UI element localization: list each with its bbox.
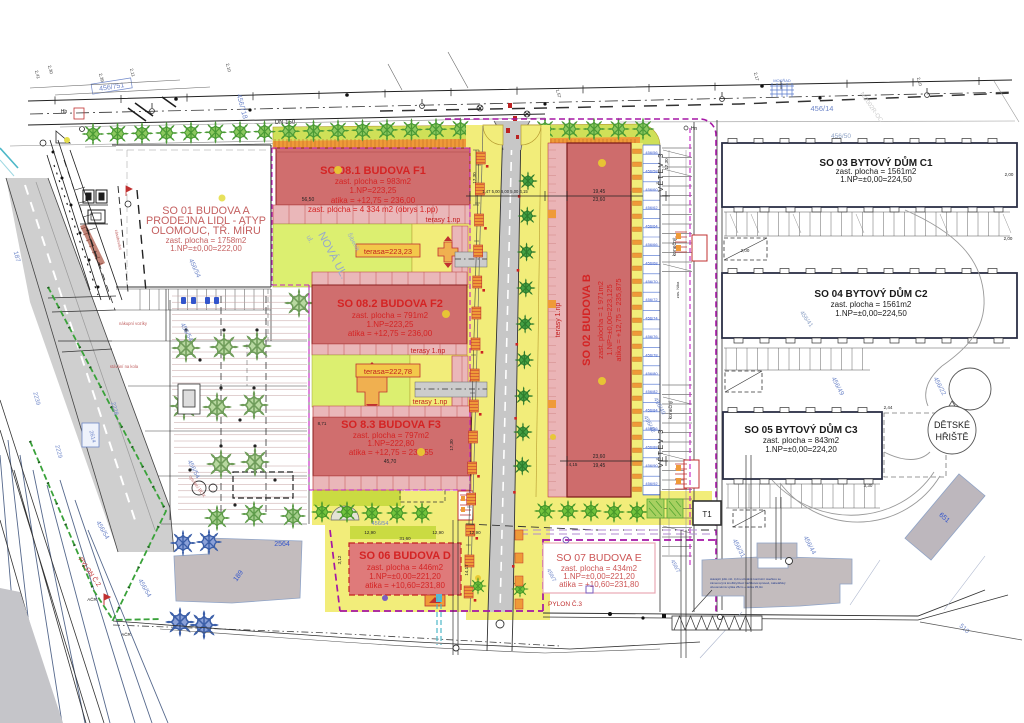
svg-text:456/14: 456/14 <box>811 104 834 113</box>
svg-text:AČR: AČR <box>121 631 131 637</box>
svg-text:23,60: 23,60 <box>593 454 606 460</box>
svg-text:SO 04 BYTOVÝ DŮM C2: SO 04 BYTOVÝ DŮM C2 <box>814 286 928 300</box>
svg-text:12,90: 12,90 <box>469 530 481 535</box>
svg-text:atika = +12,75 = 236,00: atika = +12,75 = 236,00 <box>348 329 433 338</box>
svg-text:nákupní vozíky: nákupní vozíky <box>119 321 148 326</box>
svg-text:456/72: 456/72 <box>645 297 658 302</box>
svg-text:56,50: 56,50 <box>302 197 315 203</box>
svg-text:1.NP=±0,00=224,50: 1.NP=±0,00=224,50 <box>835 309 907 318</box>
svg-text:AČR: AČR <box>87 596 97 602</box>
svg-text:SO 06 BUDOVA D: SO 06 BUDOVA D <box>359 550 451 562</box>
svg-text:4,15: 4,15 <box>569 462 578 467</box>
svg-text:456/74: 456/74 <box>645 316 658 321</box>
svg-text:zast. plocha = 843m2: zast. plocha = 843m2 <box>763 436 840 445</box>
svg-text:stávání na kola: stávání na kola <box>110 364 139 369</box>
svg-text:12,90: 12,90 <box>364 530 376 535</box>
svg-text:SO 05 BYTOVÝ DŮM C3: SO 05 BYTOVÝ DŮM C3 <box>744 422 858 436</box>
svg-text:456/60: 456/60 <box>645 187 658 192</box>
svg-text:atika = +10,60=231,80: atika = +10,60=231,80 <box>559 580 639 589</box>
svg-text:MOKŘAD: MOKŘAD <box>773 78 791 83</box>
svg-text:1.NP=±0,00=221,20: 1.NP=±0,00=221,20 <box>369 572 441 581</box>
svg-text:terasy 1.np: terasy 1.np <box>555 303 562 338</box>
svg-text:31,60: 31,60 <box>399 536 411 541</box>
svg-text:2,00: 2,00 <box>1005 172 1014 177</box>
svg-text:atika = +12,75 = 236,00: atika = +12,75 = 236,00 <box>331 196 416 205</box>
svg-text:zast. plocha = 4 334 m2 (obrys: zast. plocha = 4 334 m2 (obrys 1.pp) <box>308 205 438 214</box>
svg-text:456/70: 456/70 <box>645 279 658 284</box>
svg-text:terasy 1.np: terasy 1.np <box>411 348 446 355</box>
svg-text:HŘIŠTĚ: HŘIŠTĚ <box>935 432 968 442</box>
svg-text:terasy 1.np: terasy 1.np <box>413 399 448 406</box>
svg-text:zast. plocha = 446m2: zast. plocha = 446m2 <box>367 563 444 572</box>
svg-text:17,30: 17,30 <box>472 172 477 184</box>
svg-text:obousměrná výška 25cm + délka: obousměrná výška 25cm + délka 35,0m <box>710 585 764 589</box>
svg-text:zast. plocha = 1561m2: zast. plocha = 1561m2 <box>831 300 912 309</box>
svg-text:1,47 5,00 6,00 5,00 4,15: 1,47 5,00 6,00 5,00 4,15 <box>482 189 528 194</box>
svg-text:456/56: 456/56 <box>645 150 658 155</box>
svg-text:23,60: 23,60 <box>593 197 606 203</box>
svg-text:1.NP=±0,00=224,50: 1.NP=±0,00=224,50 <box>840 175 912 184</box>
svg-text:terasa=223,23: terasa=223,23 <box>364 247 412 256</box>
svg-text:1.NP=223,25: 1.NP=223,25 <box>350 186 397 195</box>
svg-text:zast. plocha = 983m2: zast. plocha = 983m2 <box>335 177 412 186</box>
svg-text:456/54: 456/54 <box>372 521 389 527</box>
svg-text:456/58: 456/58 <box>645 168 658 173</box>
svg-text:17,30: 17,30 <box>449 439 454 451</box>
svg-text:VĚTEV 3: VĚTEV 3 <box>656 428 665 467</box>
svg-text:2,44: 2,44 <box>884 405 893 410</box>
svg-text:14,17: 14,17 <box>464 564 469 576</box>
svg-text:1.NP=±0,00=223,125: 1.NP=±0,00=223,125 <box>605 284 614 355</box>
svg-text:SO 8.3 BUDOVA F3: SO 8.3 BUDOVA F3 <box>341 419 441 431</box>
svg-text:DĚTSKÉ: DĚTSKÉ <box>934 420 970 430</box>
svg-text:456/80: 456/80 <box>645 371 658 376</box>
svg-text:456/66: 456/66 <box>645 242 658 247</box>
svg-text:SO 08.2 BUDOVA F2: SO 08.2 BUDOVA F2 <box>337 298 443 310</box>
svg-text:456/84: 456/84 <box>645 408 658 413</box>
svg-text:456/64: 456/64 <box>645 224 658 229</box>
svg-text:terasy 1.np: terasy 1.np <box>426 217 461 224</box>
svg-text:3,12: 3,12 <box>337 555 342 564</box>
svg-text:456/82: 456/82 <box>645 389 658 394</box>
svg-text:2,00: 2,00 <box>1004 236 1013 241</box>
svg-text:2,00: 2,00 <box>741 248 750 253</box>
svg-text:456/76: 456/76 <box>645 334 658 339</box>
svg-text:17,30: 17,30 <box>664 158 669 170</box>
svg-text:zas. Nika: zas. Nika <box>675 281 680 298</box>
svg-text:zast. plocha = 1 971m2: zast. plocha = 1 971m2 <box>596 281 605 359</box>
svg-text:456/90: 456/90 <box>645 463 658 468</box>
svg-text:1.NP=±0,00=222,00: 1.NP=±0,00=222,00 <box>170 244 242 253</box>
svg-text:SO 02 BUDOVA B: SO 02 BUDOVA B <box>581 274 593 366</box>
svg-text:T1: T1 <box>702 510 712 519</box>
svg-text:456/78: 456/78 <box>645 352 658 357</box>
svg-text:456/68: 456/68 <box>645 260 658 265</box>
svg-text:Hn: Hn <box>691 126 698 132</box>
svg-text:PYLON Č.3: PYLON Č.3 <box>548 599 582 608</box>
svg-text:1.NP=222,80: 1.NP=222,80 <box>368 439 415 448</box>
svg-text:456/62: 456/62 <box>645 205 658 210</box>
svg-text:atika = +10,60=231,80: atika = +10,60=231,80 <box>365 581 445 590</box>
svg-text:456/92: 456/92 <box>645 481 658 486</box>
svg-text:45,70: 45,70 <box>384 459 397 465</box>
svg-text:19,45: 19,45 <box>593 189 606 195</box>
svg-text:1.NP=223,25: 1.NP=223,25 <box>367 320 414 329</box>
svg-text:12,90: 12,90 <box>432 530 444 535</box>
svg-text:Hb: Hb <box>61 109 68 115</box>
svg-text:SO 07 BUDOVA E: SO 07 BUDOVA E <box>556 552 642 564</box>
svg-text:8,71: 8,71 <box>318 421 327 426</box>
svg-text:456/88: 456/88 <box>645 444 658 449</box>
svg-text:19,45: 19,45 <box>593 463 606 469</box>
svg-text:456/50: 456/50 <box>831 133 851 140</box>
svg-text:terasa=222,78: terasa=222,78 <box>364 367 412 376</box>
svg-text:zast. plocha = 791m2: zast. plocha = 791m2 <box>352 311 429 320</box>
svg-text:2564: 2564 <box>274 541 290 548</box>
svg-text:1.NP=±0,00=224,20: 1.NP=±0,00=224,20 <box>765 445 837 454</box>
svg-text:atika = +12,75 = 235,875: atika = +12,75 = 235,875 <box>614 278 623 361</box>
